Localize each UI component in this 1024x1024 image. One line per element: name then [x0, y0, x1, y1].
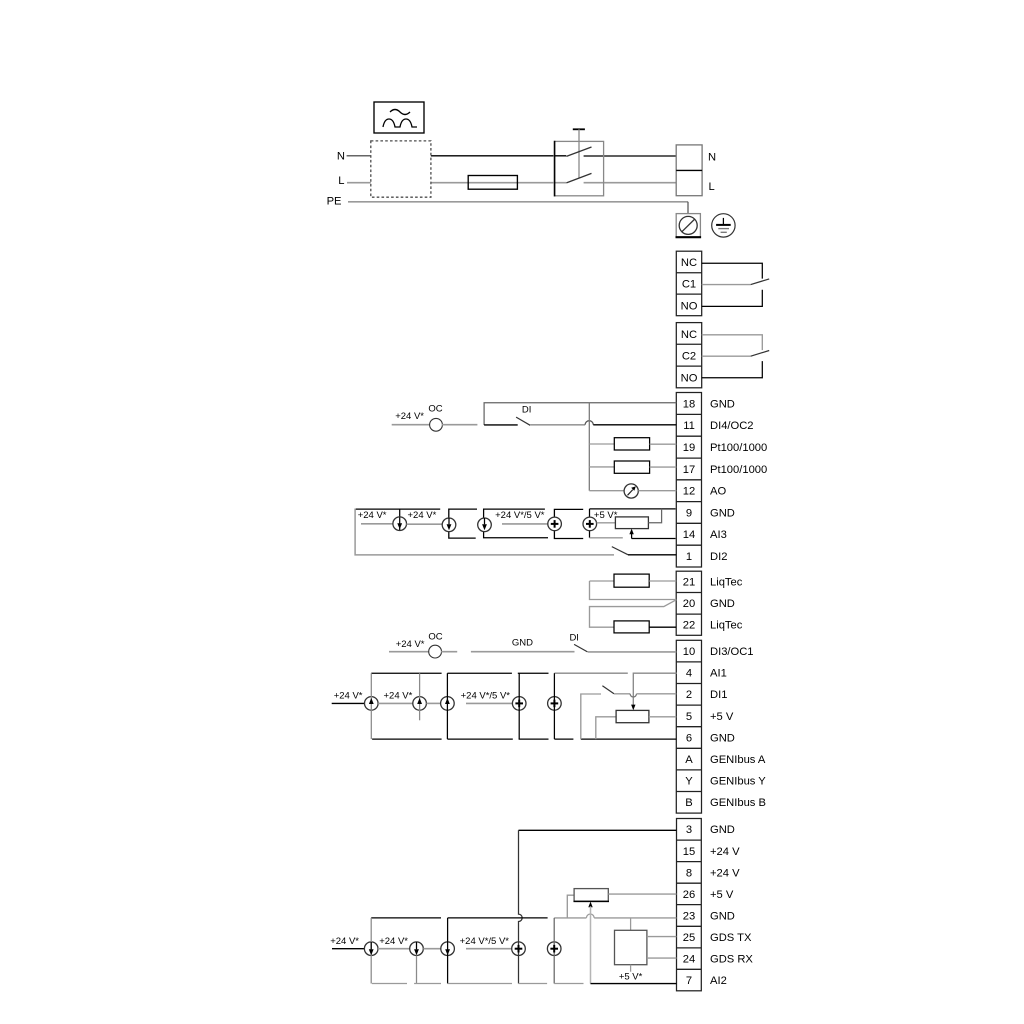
svg-text:+24 V*: +24 V* [358, 510, 387, 521]
svg-text:+24 V*: +24 V* [395, 411, 424, 422]
svg-text:C2: C2 [682, 351, 696, 363]
svg-text:A: A [685, 754, 693, 766]
svg-text:LiqTec: LiqTec [710, 620, 743, 632]
svg-text:20: 20 [683, 598, 695, 610]
svg-text:DI3/OC1: DI3/OC1 [710, 646, 754, 658]
svg-text:AO: AO [710, 486, 726, 498]
svg-text:L: L [709, 181, 715, 193]
svg-text:B: B [685, 797, 692, 809]
svg-text:+24 V*: +24 V* [334, 691, 363, 702]
svg-text:OC: OC [428, 404, 442, 415]
svg-text:25: 25 [683, 932, 695, 944]
svg-text:GND: GND [710, 824, 735, 836]
svg-text:DI2: DI2 [710, 551, 727, 563]
svg-text:21: 21 [683, 577, 695, 589]
svg-text:GENIbus A: GENIbus A [710, 754, 766, 766]
svg-text:1: 1 [686, 551, 692, 563]
svg-text:OC: OC [428, 632, 442, 643]
svg-text:6: 6 [686, 732, 692, 744]
svg-text:NC: NC [681, 257, 697, 269]
svg-text:14: 14 [683, 529, 695, 541]
svg-text:LiqTec: LiqTec [710, 577, 743, 589]
svg-text:GND: GND [710, 732, 735, 744]
svg-text:26: 26 [683, 889, 695, 901]
svg-text:10: 10 [683, 646, 695, 658]
svg-text:L: L [338, 175, 344, 187]
svg-text:AI2: AI2 [710, 975, 727, 987]
svg-text:DI4/OC2: DI4/OC2 [710, 420, 754, 432]
svg-text:24: 24 [683, 954, 695, 966]
svg-text:GND: GND [710, 910, 735, 922]
svg-text:+24 V*/5 V*: +24 V*/5 V* [495, 510, 545, 521]
svg-text:GND: GND [512, 638, 533, 649]
svg-text:NC: NC [681, 329, 697, 341]
svg-text:GENIbus Y: GENIbus Y [710, 776, 766, 788]
svg-text:DI: DI [569, 633, 579, 644]
svg-text:N: N [708, 152, 716, 164]
svg-text:+24 V*: +24 V* [384, 691, 413, 702]
svg-text:9: 9 [686, 507, 692, 519]
svg-text:3: 3 [686, 824, 692, 836]
svg-text:12: 12 [683, 486, 695, 498]
svg-text:4: 4 [686, 668, 692, 680]
svg-text:GDS RX: GDS RX [710, 954, 753, 966]
svg-text:18: 18 [683, 398, 695, 410]
svg-text:2: 2 [686, 689, 692, 701]
svg-text:DI1: DI1 [710, 689, 727, 701]
svg-text:15: 15 [683, 846, 695, 858]
svg-text:23: 23 [683, 910, 695, 922]
svg-text:17: 17 [683, 464, 695, 476]
svg-text:C1: C1 [682, 279, 696, 291]
svg-text:+24 V*/5 V*: +24 V*/5 V* [461, 691, 511, 702]
svg-text:+5 V*: +5 V* [594, 510, 618, 521]
svg-text:PE: PE [327, 196, 342, 208]
svg-text:+24 V: +24 V [710, 846, 740, 858]
svg-text:7: 7 [686, 975, 692, 987]
svg-text:+5 V: +5 V [710, 889, 734, 901]
svg-text:+5 V*: +5 V* [619, 972, 643, 983]
svg-text:+24 V*: +24 V* [379, 936, 408, 947]
svg-text:GND: GND [710, 398, 735, 410]
svg-text:Y: Y [685, 776, 693, 788]
svg-text:AI3: AI3 [710, 529, 727, 541]
svg-text:8: 8 [686, 867, 692, 879]
svg-text:NO: NO [681, 373, 698, 385]
svg-text:+5 V: +5 V [710, 711, 734, 723]
svg-text:5: 5 [686, 711, 692, 723]
svg-text:22: 22 [683, 620, 695, 632]
svg-text:N: N [337, 151, 345, 163]
svg-text:Pt100/1000: Pt100/1000 [710, 442, 767, 454]
svg-text:19: 19 [683, 442, 695, 454]
svg-text:AI1: AI1 [710, 668, 727, 680]
svg-text:GND: GND [710, 507, 735, 519]
svg-text:+24 V*: +24 V* [408, 510, 437, 521]
svg-text:Pt100/1000: Pt100/1000 [710, 464, 767, 476]
svg-text:+24 V*: +24 V* [330, 936, 359, 947]
svg-text:+24 V*: +24 V* [396, 639, 425, 650]
svg-text:+24 V*/5 V*: +24 V*/5 V* [460, 936, 510, 947]
svg-text:+24 V: +24 V [710, 867, 740, 879]
svg-text:GND: GND [710, 598, 735, 610]
svg-text:NO: NO [681, 301, 698, 313]
svg-text:GENIbus B: GENIbus B [710, 797, 766, 809]
svg-text:DI: DI [522, 405, 532, 416]
svg-text:11: 11 [683, 420, 695, 432]
svg-text:GDS TX: GDS TX [710, 932, 752, 944]
